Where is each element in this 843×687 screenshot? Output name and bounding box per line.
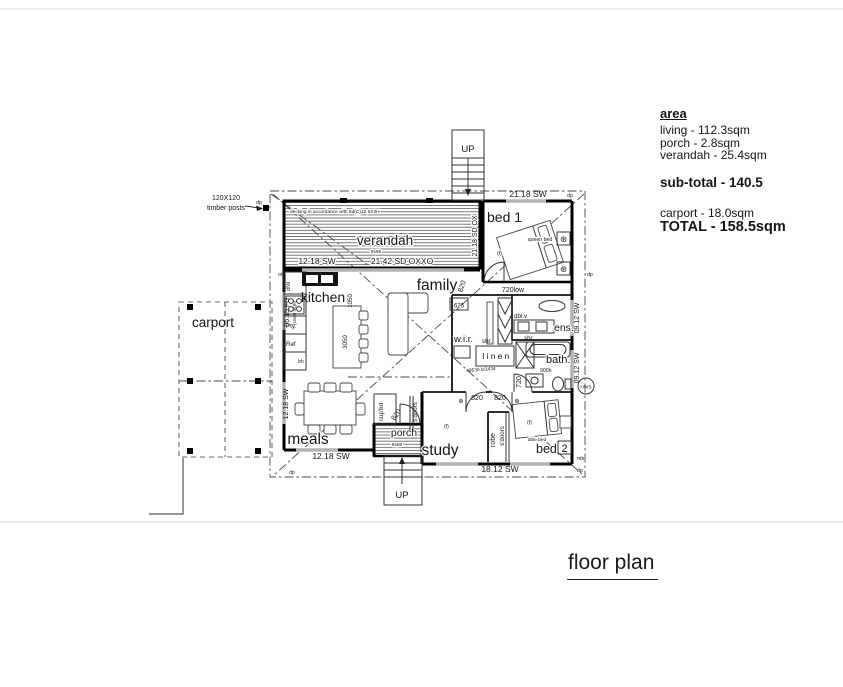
carport-post: [255, 304, 261, 310]
queen-bed-label: queen bed: [528, 237, 553, 243]
ens-tub: [539, 301, 565, 312]
area-verandah: verandah - 25.4sqm: [660, 149, 840, 162]
room-label-wir: w.i.r.: [453, 334, 473, 345]
porch-deck-size: 9x68: [392, 442, 403, 448]
dim-left-sw: 12.18 SW: [283, 388, 290, 419]
fan-marker: (f): [527, 420, 532, 426]
area-total: TOTAL - 158.5sqm: [660, 221, 840, 234]
dim-bottom-sw: 18.12 SW: [481, 464, 518, 474]
fan-symbol: ⊛: [560, 264, 567, 274]
door-820-label: 820: [471, 395, 483, 402]
toilet: [553, 377, 564, 391]
area-summary: area living - 112.3sqm porch - 2.8sqm ve…: [660, 108, 840, 234]
carport-post: [255, 378, 261, 384]
deck-size-note: 9x68: [371, 249, 382, 255]
deck-note: decking in accordance with 6d(C)12 6X3H: [290, 209, 380, 215]
ot-label: ot: [278, 272, 283, 278]
room-label-bed2: bed: [536, 442, 557, 456]
dim-625: 625: [454, 303, 465, 310]
downpipe-label: dp: [289, 470, 295, 476]
cupboard-label: cup'bd: [378, 402, 385, 421]
downpipe-label: dp: [577, 468, 583, 474]
meterbox-label: mb: [577, 456, 584, 462]
stairs-bottom: UP: [384, 456, 422, 505]
room-label-carport: carport: [192, 315, 234, 330]
fan-symbol: ⊛: [458, 398, 463, 405]
floor-plan-drawing: carport verandah 9x68 decking in accorda…: [0, 0, 843, 687]
room-label-kitchen: kitchen: [301, 289, 345, 305]
door-720-label: 720: [516, 376, 523, 388]
kitchen-fixtures: Pty. Ref d/W bh ot 1050 3050: [278, 272, 368, 370]
sofa: [388, 293, 408, 355]
dim-1050: 1050: [347, 294, 354, 308]
floor-plan-page: carport verandah 9x68 decking in accorda…: [0, 0, 843, 687]
room-label-bath: bath.: [546, 354, 570, 366]
room-label-ens: ens.: [554, 322, 574, 334]
area-subtotal: sub-total - 140.5: [660, 177, 840, 190]
porch-deck: porch 9x68: [374, 424, 422, 456]
fan-marker: (f): [444, 424, 449, 430]
stairs-top-up-label: UP: [461, 144, 474, 155]
door-820-label: 820: [391, 408, 403, 422]
room-label-linen: linen: [483, 351, 512, 361]
carport-structure: carport: [149, 302, 272, 514]
carport-post: [187, 448, 193, 454]
dim-verandah-east: 21.18 SD OX: [472, 215, 479, 257]
stairs-top: UP: [452, 130, 484, 200]
fan-symbol: ⊛: [560, 234, 567, 244]
verandah-deck: verandah 9x68 decking in accordance with…: [263, 198, 480, 268]
timber-posts-note: 120X120: [212, 195, 240, 202]
fridge-label: Ref: [286, 341, 296, 348]
timber-post: [263, 205, 269, 211]
room-label-verandah: verandah: [357, 233, 413, 248]
fan-symbol: ⊛: [514, 398, 519, 405]
fan-marker: (f): [497, 251, 502, 257]
dim-900h: 900h: [540, 368, 552, 374]
dim-3050: 3050: [342, 335, 349, 349]
bed1-furniture: queen bed (f) ⊛ ⊛: [497, 220, 570, 279]
dim-right-sw: 09.12 SW: [574, 352, 581, 383]
room-label-study: study: [421, 442, 458, 459]
door-820-label: 820: [494, 395, 506, 402]
drawing-title: floor plan: [567, 551, 658, 580]
downpipe-label: dp: [587, 272, 593, 278]
hws-label: HWS: [580, 385, 591, 391]
bh-label: bh: [298, 359, 304, 365]
dim-right-sw: 09.12 SW: [574, 302, 581, 333]
carport-post: [187, 378, 193, 384]
shower-label: shr.: [482, 338, 492, 345]
carport-post: [187, 304, 193, 310]
sliding-doors-label: s'doors: [499, 426, 506, 446]
dishwasher-label: d/W: [286, 282, 292, 291]
dim-verandah-sw: 12.18 SW: [298, 256, 335, 266]
area-carport: carport - 18.0sqm: [660, 207, 840, 220]
window-code: 46630 b/1434: [466, 366, 496, 374]
dim-left-fg-note: (1500 high): [292, 300, 298, 325]
dim-top: 21.18 SW: [509, 189, 546, 199]
area-living: living - 112.3sqm: [660, 124, 840, 137]
bed2-furniture: dble.bed (f): [512, 400, 571, 443]
door-820-label: 820: [457, 280, 468, 293]
area-heading: area: [660, 108, 840, 121]
room-label-family: family: [417, 277, 458, 294]
stairs-bottom-up-label: UP: [395, 490, 408, 501]
meals-furniture: [295, 383, 365, 434]
room-label-robe: robe: [490, 433, 497, 447]
downpipe-label: dp: [567, 193, 573, 199]
carport-post: [255, 448, 261, 454]
room-label-bed1: bed 1: [487, 209, 522, 225]
double-vanity-label: dbl.v: [514, 313, 528, 320]
downpipe-label: dp: [256, 200, 262, 206]
dim-meals-sw: 12.18 SW: [312, 451, 349, 461]
bath-vanity: [526, 374, 543, 387]
shower-label: shr.: [524, 335, 534, 342]
dim-left-fg: 06.15 FG: [284, 297, 291, 326]
dim-low-window: 720low: [502, 287, 525, 294]
nightstand: [560, 416, 571, 428]
room-label-meals: meals: [287, 431, 329, 448]
timber-posts-note: timber posts: [207, 205, 246, 212]
dim-verandah-door: 21.42 SD OXXO: [371, 256, 434, 266]
dining-table: [304, 391, 356, 425]
room-label-bed2-num: 2: [561, 443, 567, 455]
wir-cabinet: [454, 346, 470, 358]
